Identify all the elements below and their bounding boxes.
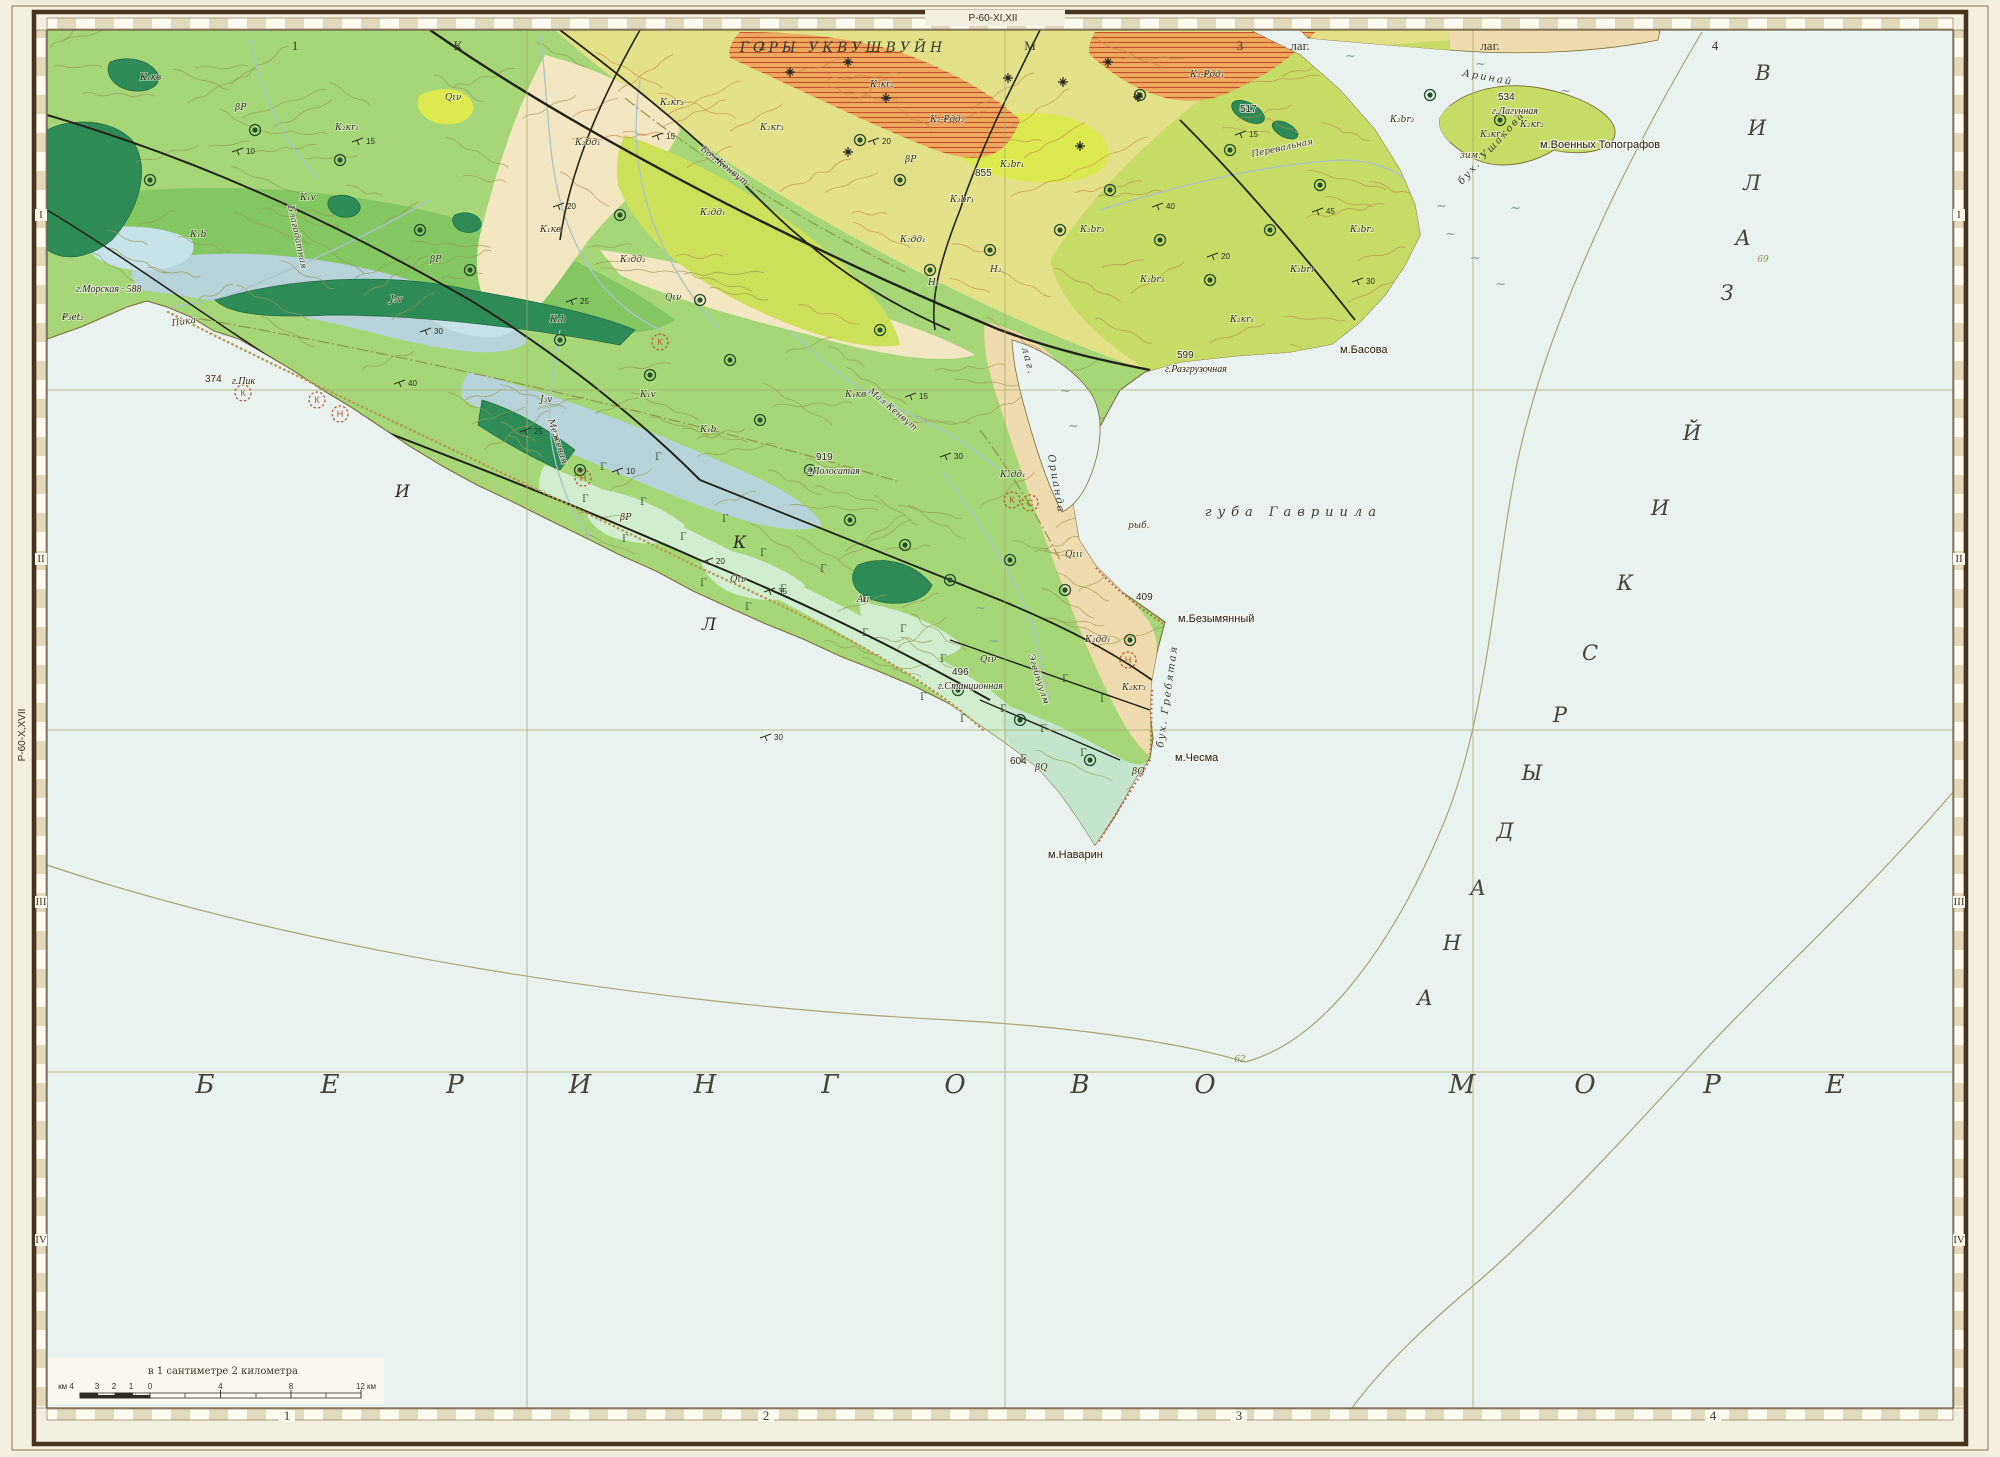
map-label-unit: К₂дд₁ bbox=[899, 235, 926, 245]
dip-value: 20 bbox=[882, 137, 891, 146]
paleogene-gamma-symbol: Г bbox=[940, 654, 947, 665]
map-label-unit: К₂br₁ bbox=[999, 160, 1024, 170]
sea-name-letter: Н bbox=[693, 1070, 718, 1100]
map-label-mnt: г.Пик bbox=[232, 376, 255, 387]
shallow-water-mark: ~ bbox=[1475, 57, 1486, 72]
sea-name-letter: И bbox=[568, 1070, 593, 1100]
map-label-bay: губа Гавриила bbox=[1205, 505, 1382, 520]
map-label-unit: βQ bbox=[1034, 763, 1048, 773]
map-label-unit: Qιιι bbox=[1065, 550, 1083, 560]
paleogene-gamma-symbol: Г bbox=[1062, 674, 1069, 685]
scale-number: 3 bbox=[95, 1382, 100, 1391]
paleogene-gamma-symbol: Г bbox=[655, 452, 662, 463]
map-label-unit: ₽₃еt₂ bbox=[61, 313, 84, 323]
sea-name-letter: В bbox=[1069, 1070, 1089, 1100]
paleogene-gamma-symbol: Г bbox=[820, 564, 827, 575]
dip-value: 30 bbox=[1366, 277, 1375, 286]
dip-value: 25 bbox=[580, 297, 589, 306]
gulf-name-letter: Й bbox=[1682, 420, 1702, 445]
paleogene-gamma-symbol: Г bbox=[1000, 704, 1007, 715]
map-label-elev: 374 bbox=[205, 374, 222, 385]
map-label-mnt: г.Лагунная bbox=[1492, 106, 1538, 117]
grid-label-top: 4 bbox=[1712, 38, 1719, 53]
shallow-water-mark: ~ bbox=[975, 601, 986, 616]
svg-text:К: К bbox=[314, 395, 320, 405]
map-label-unit: К₂дд₁ bbox=[574, 138, 601, 148]
shallow-water-mark: ~ bbox=[1470, 251, 1481, 266]
map-label-unit: К₂кr₃ bbox=[659, 98, 684, 108]
map-label-elev: 534 bbox=[1498, 92, 1515, 103]
paleogene-gamma-symbol: Г bbox=[640, 497, 647, 508]
grid-label-top: лаг. bbox=[1480, 38, 1499, 53]
dip-value: 25 bbox=[534, 427, 543, 436]
svg-text:Н: Н bbox=[580, 473, 587, 483]
gulf-name-letter: З bbox=[1720, 281, 1733, 305]
row-roman-right: IV bbox=[1953, 1234, 1965, 1246]
scale-number: 4 bbox=[218, 1382, 223, 1391]
map-label-unit: J₃v bbox=[388, 295, 402, 305]
map-label-unit: К₁b bbox=[699, 425, 717, 435]
grid-label-bottom: 4 bbox=[1710, 1408, 1717, 1423]
sheet-code-left: Р-60-X,XVII bbox=[17, 709, 28, 762]
map-label-unit: βР bbox=[904, 155, 917, 165]
paleogene-gamma-symbol: Г bbox=[900, 624, 907, 635]
grid-label-top: лаг. bbox=[1290, 38, 1309, 53]
map-label-unit: К₂br₃ bbox=[1079, 225, 1105, 235]
gulf-name-letter: И bbox=[1747, 116, 1767, 140]
scale-note: в 1 сантиметре 2 километра bbox=[148, 1366, 298, 1377]
svg-text:Н: Н bbox=[1125, 655, 1132, 665]
map-label-unit: К₁кв bbox=[139, 73, 161, 83]
map-label-unit: К₁кв bbox=[844, 390, 866, 400]
dip-value: 40 bbox=[408, 379, 417, 388]
map-label-mnt: г.Разгрузочная bbox=[1165, 364, 1227, 375]
map-label-cape: м.Басова bbox=[1340, 344, 1388, 356]
row-roman-right: I bbox=[1957, 209, 1961, 221]
map-label-unit: К₂br₁ bbox=[949, 195, 974, 205]
grid-label-top: 3 bbox=[1237, 38, 1244, 53]
map-label-unit: К₂кr₁ bbox=[1479, 130, 1504, 140]
gulf-name-letter: Л bbox=[1742, 171, 1761, 195]
depth-label: 69 bbox=[1757, 255, 1769, 265]
map-label-unit: βР bbox=[429, 255, 442, 265]
map-label-unit: Qιν bbox=[665, 293, 682, 303]
paleogene-gamma-symbol: Г bbox=[960, 714, 967, 725]
sea-name-letter: М bbox=[1448, 1070, 1477, 1100]
shallow-water-mark: ~ bbox=[1436, 199, 1447, 214]
map-label-unit: К₁b bbox=[549, 315, 567, 325]
paleogene-gamma-symbol: Г bbox=[700, 578, 707, 589]
dip-value: 20 bbox=[716, 557, 725, 566]
gulf-name-letter: Р bbox=[1552, 703, 1568, 727]
map-label-unit: βР bbox=[234, 103, 247, 113]
map-label-elev: 409 bbox=[1136, 592, 1153, 603]
paleogene-gamma-symbol: Г bbox=[862, 594, 869, 605]
map-label-unit: βР bbox=[619, 513, 632, 523]
shallow-water-mark: ~ bbox=[1060, 384, 1071, 399]
paleogene-gamma-symbol: Г bbox=[780, 584, 787, 595]
sheet-code-top: Р-60-XI,XII bbox=[969, 13, 1018, 24]
gulf-name-letter: С bbox=[1582, 641, 1598, 665]
gulf-name-letter: Н bbox=[1442, 931, 1462, 955]
paleogene-gamma-symbol: Г bbox=[1100, 694, 1107, 705]
map-label-unit: К₂br₃ bbox=[1139, 275, 1165, 285]
row-roman-right: II bbox=[1955, 553, 1963, 565]
map-label-unit: К₂-₽дд₁ bbox=[1189, 70, 1224, 80]
map-label-cape: м.Безымянный bbox=[1178, 613, 1254, 625]
depth-label: 62 bbox=[1234, 1055, 1246, 1065]
row-roman-left: I bbox=[39, 209, 43, 221]
sea-name-letter: Б bbox=[194, 1070, 214, 1100]
row-roman-left: III bbox=[36, 896, 47, 908]
map-label-unit: Н₂ bbox=[989, 265, 1002, 275]
map-label-cape: м.Чесма bbox=[1175, 752, 1219, 764]
dip-value: 15 bbox=[1249, 130, 1258, 139]
map-label-unit: К₂br₂ bbox=[1349, 225, 1375, 235]
gulf-name-letter: Д bbox=[1495, 819, 1514, 843]
scale-number: 8 bbox=[289, 1382, 294, 1391]
geological-map: ККННККСН10152015253040251020351540204530… bbox=[0, 0, 2000, 1457]
map-label-elev: 517 bbox=[1240, 104, 1257, 115]
map-label-unit: К₂кr₂ bbox=[869, 80, 894, 90]
map-label-elev: 919 bbox=[816, 452, 833, 463]
mountain-range-label: ГОРЫ УКВУШВУЙН bbox=[739, 37, 947, 56]
map-label-unit: К₁b bbox=[189, 230, 207, 240]
paleogene-gamma-symbol: Г bbox=[760, 548, 767, 559]
map-label-unit: К₂кr₂ bbox=[1519, 120, 1544, 130]
paleogene-gamma-symbol: Г bbox=[1020, 754, 1027, 765]
gulf-name-letter: И bbox=[1650, 496, 1670, 520]
map-label-unit: К₂кr₁ bbox=[1229, 315, 1254, 325]
map-label-elev: 855 bbox=[975, 168, 992, 179]
row-roman-left: II bbox=[37, 553, 45, 565]
scale-number: км 4 bbox=[58, 1382, 74, 1391]
dip-value: 10 bbox=[626, 467, 635, 476]
paleogene-gamma-symbol: Г bbox=[582, 494, 589, 505]
dip-value: 10 bbox=[246, 147, 255, 156]
grid-label-top: 1 bbox=[292, 38, 299, 53]
row-roman-left: IV bbox=[35, 1234, 47, 1246]
sea-name-letter: Р bbox=[445, 1070, 464, 1100]
gulf-name-letter: К bbox=[1616, 571, 1634, 595]
shallow-water-mark: ~ bbox=[1495, 277, 1506, 292]
map-label-unit: К₁кв bbox=[539, 225, 561, 235]
paleogene-gamma-symbol: Г bbox=[680, 532, 687, 543]
dip-value: 30 bbox=[434, 327, 443, 336]
map-label-misc: зим. bbox=[1460, 151, 1481, 161]
svg-text:К: К bbox=[1009, 495, 1015, 505]
paleogene-gamma-symbol: Г bbox=[600, 462, 607, 473]
dip-value: 15 bbox=[366, 137, 375, 146]
map-label-gl: И bbox=[394, 482, 411, 502]
svg-text:С: С bbox=[1027, 498, 1034, 508]
map-label-elev: 599 bbox=[1177, 350, 1194, 361]
map-label-cape: м.Наварин bbox=[1048, 849, 1103, 861]
map-label-mnt: г.Полосатая bbox=[806, 466, 860, 477]
scale-number: 2 bbox=[112, 1382, 117, 1391]
grid-label-bottom: 3 bbox=[1236, 1408, 1243, 1423]
dip-value: 30 bbox=[774, 733, 783, 742]
svg-text:К: К bbox=[657, 337, 663, 347]
map-label-unit: К₁v bbox=[639, 390, 656, 400]
sea-name-letter: О bbox=[1574, 1070, 1595, 1100]
sea-name-letter: О bbox=[944, 1070, 965, 1100]
dip-value: 40 bbox=[1166, 202, 1175, 211]
map-label-gl: К bbox=[732, 533, 747, 553]
paleogene-gamma-symbol: Г bbox=[1080, 748, 1087, 759]
dip-value: 30 bbox=[954, 452, 963, 461]
gulf-name-letter: Ы bbox=[1521, 761, 1543, 785]
map-label-unit: К₂дд₁ bbox=[699, 208, 726, 218]
paleogene-gamma-symbol: Г bbox=[920, 692, 927, 703]
scale-number: 12 км bbox=[356, 1382, 376, 1391]
map-label-unit: К₂-₽дд₂ bbox=[929, 115, 965, 125]
gulf-name-letter: В bbox=[1754, 61, 1770, 85]
map-label-elev: 496 bbox=[952, 667, 969, 678]
map-label-mnt: г.Станционная bbox=[938, 681, 1003, 692]
dip-value: 45 bbox=[1326, 207, 1335, 216]
map-label-unit: βQ bbox=[1131, 767, 1145, 777]
map-label-unit: К₂кr₃ bbox=[1121, 683, 1146, 693]
shallow-water-mark: ~ bbox=[1345, 49, 1356, 64]
sea-name-letter: О bbox=[1194, 1070, 1215, 1100]
paleogene-gamma-symbol: Г bbox=[722, 514, 729, 525]
sea-name-letter: Р bbox=[1702, 1070, 1721, 1100]
map-label-gl: Л bbox=[701, 615, 717, 635]
shallow-water-mark: ~ bbox=[1068, 419, 1079, 434]
grid-label-bottom: 2 bbox=[763, 1408, 770, 1423]
scale-bar: в 1 сантиметре 2 километра км 432104812 … bbox=[48, 1358, 384, 1404]
paleogene-gamma-symbol: Г bbox=[745, 602, 752, 613]
map-label-unit: Qιν bbox=[445, 93, 462, 103]
shallow-water-mark: ~ bbox=[1510, 201, 1521, 216]
row-roman-right: III bbox=[1954, 896, 1965, 908]
paleogene-gamma-symbol: Г bbox=[622, 534, 629, 545]
map-label-unit: Н₁ bbox=[927, 278, 939, 288]
dip-value: 15 bbox=[919, 392, 928, 401]
paleogene-gamma-symbol: Г bbox=[1040, 724, 1047, 735]
svg-text:Н: Н bbox=[337, 409, 344, 419]
map-label-unit: J₃v bbox=[538, 395, 552, 405]
svg-text:К: К bbox=[240, 388, 246, 398]
map-label-unit: К₁v bbox=[299, 193, 316, 203]
sea-name-letter: Г bbox=[820, 1070, 839, 1100]
map-label-unit: К₂кr₃ bbox=[759, 123, 784, 133]
sea-name-letter: Е bbox=[320, 1070, 340, 1100]
map-label-unit: К₂кr₁ bbox=[334, 123, 359, 133]
map-label-unit: К₂дд₁ bbox=[1084, 635, 1111, 645]
paleogene-gamma-symbol: Г bbox=[862, 628, 869, 639]
shallow-water-mark: ~ bbox=[1560, 84, 1571, 99]
map-label-unit: К₂br₁ bbox=[1289, 265, 1314, 275]
dip-value: 20 bbox=[1221, 252, 1230, 261]
grid-label-top: К bbox=[454, 38, 463, 53]
dip-value: 15 bbox=[666, 132, 675, 141]
shallow-water-mark: ~ bbox=[988, 634, 999, 649]
grid-label-bottom: 1 bbox=[284, 1408, 291, 1423]
shallow-water-mark: ~ bbox=[1445, 227, 1456, 242]
gulf-name-letter: А bbox=[1468, 876, 1486, 900]
map-label-mnt: г.Морская · 588 bbox=[76, 284, 141, 295]
map-label-unit: Qιν bbox=[730, 575, 747, 585]
scale-number: 0 bbox=[148, 1382, 153, 1391]
map-label-misc: рыб. bbox=[1128, 520, 1150, 531]
gulf-name-letter: А bbox=[1733, 226, 1751, 250]
map-sheet: ККННККСН10152015253040251020351540204530… bbox=[0, 0, 2000, 1457]
map-label-unit: Qιν bbox=[980, 655, 997, 665]
map-label-unit: К₂дд₁ bbox=[999, 470, 1026, 480]
map-label-unit: К₂дд₂ bbox=[619, 255, 646, 265]
sea-name-letter: Е bbox=[1825, 1070, 1845, 1100]
map-label-unit: К₂br₂ bbox=[1389, 115, 1415, 125]
scale-number: 1 bbox=[129, 1382, 134, 1391]
map-label-cape: м.Военных Топографов bbox=[1540, 139, 1660, 151]
dip-value: 20 bbox=[567, 202, 576, 211]
grid-label-top: М bbox=[1024, 38, 1036, 53]
gulf-name-letter: А bbox=[1415, 986, 1433, 1010]
